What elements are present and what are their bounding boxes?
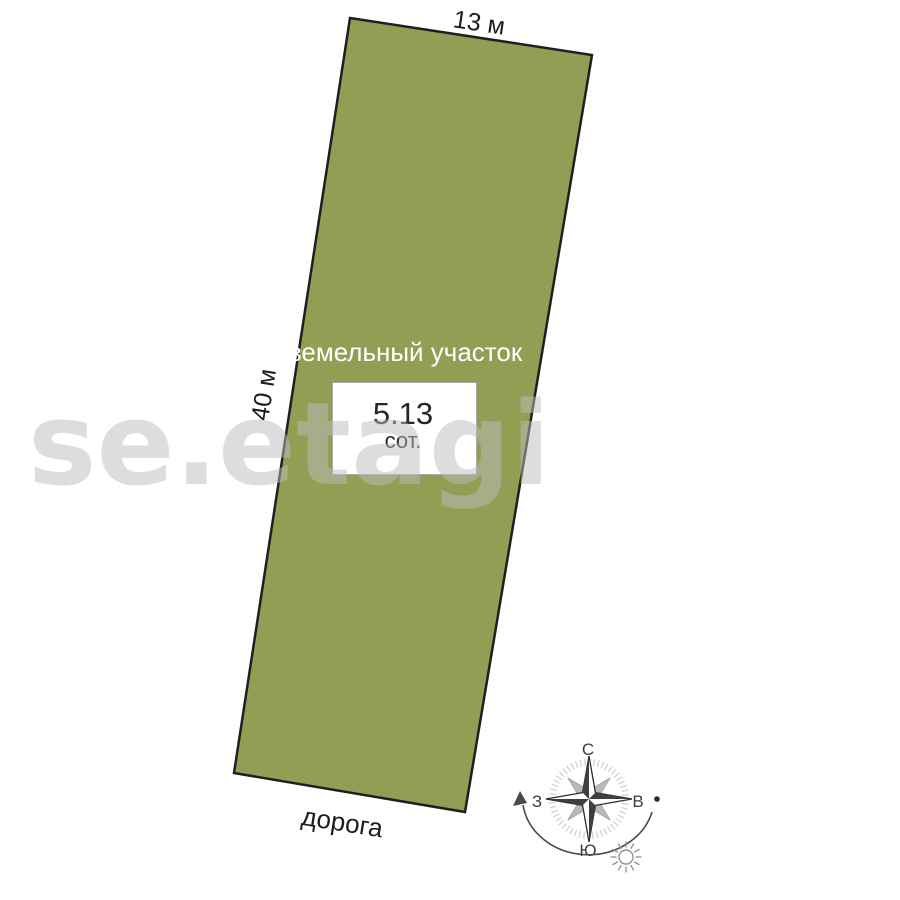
sun-icon xyxy=(611,842,642,873)
plot-scene: 13 м 40 м земельный участок 5.13 сот. до… xyxy=(0,0,900,900)
land-plot-diagram: 13 м 40 м земельный участок 5.13 сот. до… xyxy=(0,0,900,900)
compass-shade-east xyxy=(589,793,632,799)
area-unit: сот. xyxy=(385,428,422,453)
plot-title: земельный участок xyxy=(290,337,523,367)
compass-north-label: С xyxy=(582,740,594,759)
compass-south-label: Ю xyxy=(579,841,596,860)
sun-path-arrowhead xyxy=(513,791,527,806)
compass-west-label: З xyxy=(532,792,542,811)
length-dimension-label: 40 м xyxy=(246,367,282,423)
compass-rose-icon: С Ю З В xyxy=(513,740,660,873)
area-value: 5.13 xyxy=(373,396,433,431)
road-label: дорога xyxy=(300,801,386,844)
compass-east-label: В xyxy=(632,792,643,811)
east-dot xyxy=(654,796,660,802)
